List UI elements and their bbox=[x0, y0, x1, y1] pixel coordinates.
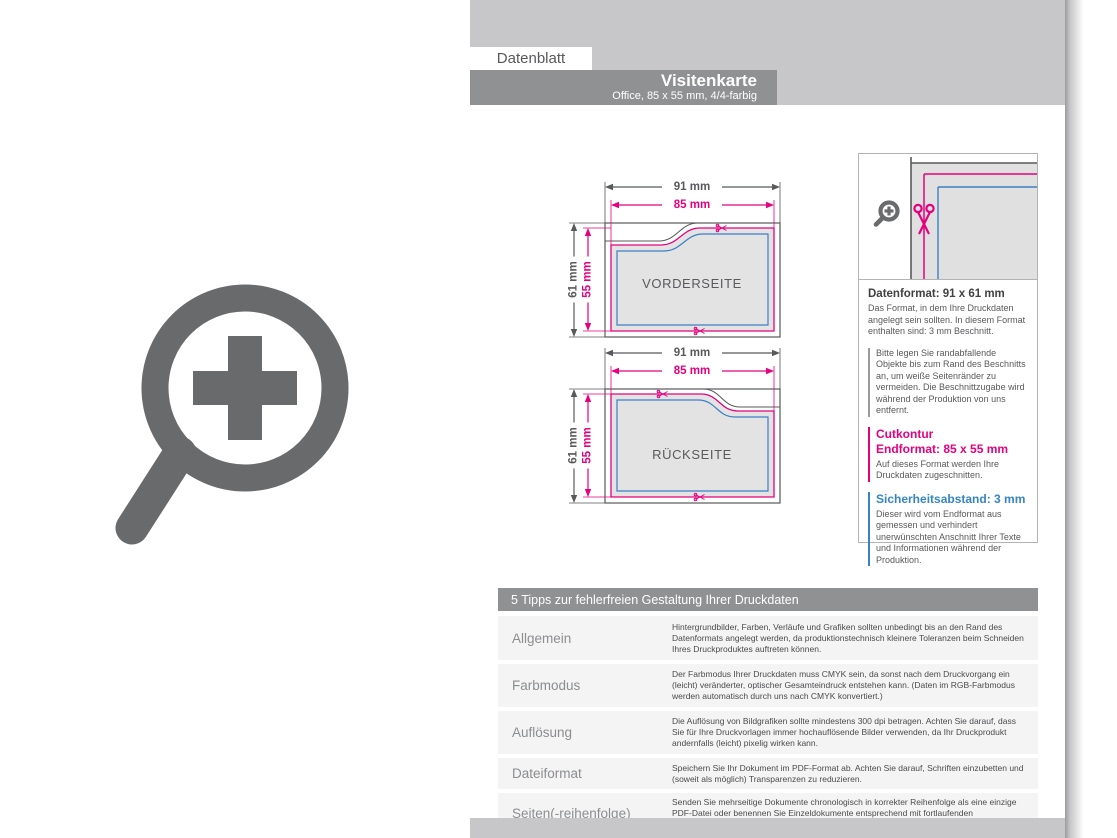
bleed-note-section: Bitte legen Sie randabfallende Objekte b… bbox=[868, 348, 1029, 417]
tip-label-dateiformat: Dateiformat bbox=[498, 766, 672, 781]
datasheet-page: Datenblatt Visitenkarte Office, 85 x 55 … bbox=[0, 0, 1117, 838]
tip-text-aufloesung: Die Auflösung von Bildgrafiken sollte mi… bbox=[672, 712, 1038, 753]
datenformat-text: Das Format, in dem Ihre Druckdaten angel… bbox=[868, 303, 1029, 338]
table-row: Allgemein Hintergrundbilder, Farben, Ver… bbox=[498, 616, 1038, 660]
tips-header: 5 Tipps zur fehlerfreien Gestaltung Ihre… bbox=[498, 588, 1038, 611]
back-side-label: RÜCKSEITE bbox=[612, 447, 772, 462]
sicherheitsabstand-title: Sicherheitsabstand: 3 mm bbox=[876, 492, 1029, 507]
table-row: Dateiformat Speichern Sie Ihr Dokument i… bbox=[498, 758, 1038, 789]
front-side-diagram: 91 mm 85 mm 61 mm 55 mm VORDERSEITE bbox=[555, 180, 800, 345]
corner-detail-image bbox=[859, 154, 1037, 280]
back-side-diagram: 91 mm 85 mm 61 mm 55 mm RÜCKSEITE bbox=[555, 346, 800, 511]
back-dim-61mm: 61 mm bbox=[568, 423, 581, 469]
back-dim-55mm: 55 mm bbox=[582, 423, 595, 469]
page-edge-shadow bbox=[1065, 0, 1087, 838]
datenformat-section: Datenformat: 91 x 61 mm Das Format, in d… bbox=[868, 287, 1029, 338]
tip-text-dateiformat: Speichern Sie Ihr Dokument im PDF-Format… bbox=[672, 759, 1038, 789]
corner-detail-drawing bbox=[859, 154, 1037, 279]
magnifier-plus-icon bbox=[102, 268, 372, 558]
endformat-text: Auf dieses Format werden Ihre Druckdaten… bbox=[876, 459, 1029, 482]
cutkontur-title: Cutkontur bbox=[876, 427, 1029, 442]
front-dim-61mm: 61 mm bbox=[568, 257, 581, 303]
bleed-note-text: Bitte legen Sie randabfallende Objekte b… bbox=[876, 348, 1029, 417]
back-dim-91mm: 91 mm bbox=[662, 347, 722, 360]
tip-text-farbmodus: Der Farbmodus Ihrer Druckdaten muss CMYK… bbox=[672, 665, 1038, 706]
datenblatt-tab-label: Datenblatt bbox=[497, 50, 565, 67]
zoom-icon bbox=[876, 203, 898, 225]
info-panel-text: Datenformat: 91 x 61 mm Das Format, in d… bbox=[859, 280, 1037, 566]
datenblatt-tab: Datenblatt bbox=[470, 47, 592, 70]
tip-label-farbmodus: Farbmodus bbox=[498, 678, 672, 693]
front-dim-55mm: 55 mm bbox=[582, 257, 595, 303]
tips-title: 5 Tipps zur fehlerfreien Gestaltung Ihre… bbox=[511, 593, 799, 607]
page-title: Visitenkarte bbox=[661, 72, 757, 90]
tip-text-allgemein: Hintergrundbilder, Farben, Verläufe und … bbox=[672, 618, 1038, 659]
sicherheitsabstand-section: Sicherheitsabstand: 3 mm Dieser wird vom… bbox=[868, 492, 1029, 567]
tip-label-allgemein: Allgemein bbox=[498, 631, 672, 646]
front-side-label: VORDERSEITE bbox=[612, 276, 772, 291]
datenformat-title: Datenformat: 91 x 61 mm bbox=[868, 287, 1029, 301]
tips-table: 5 Tipps zur fehlerfreien Gestaltung Ihre… bbox=[498, 588, 1038, 834]
cutkontur-section: Cutkontur Endformat: 85 x 55 mm Auf dies… bbox=[868, 427, 1029, 482]
info-panel: Datenformat: 91 x 61 mm Das Format, in d… bbox=[858, 153, 1038, 543]
title-bar: Visitenkarte Office, 85 x 55 mm, 4/4-far… bbox=[470, 70, 777, 105]
endformat-title: Endformat: 85 x 55 mm bbox=[876, 442, 1029, 457]
bottom-gray-band bbox=[470, 818, 1065, 838]
table-row: Auflösung Die Auflösung von Bildgrafiken… bbox=[498, 711, 1038, 754]
table-row: Farbmodus Der Farbmodus Ihrer Druckdaten… bbox=[498, 664, 1038, 707]
back-dim-85mm: 85 mm bbox=[662, 365, 722, 378]
page-subtitle: Office, 85 x 55 mm, 4/4-farbig bbox=[612, 90, 757, 103]
front-dim-85mm: 85 mm bbox=[662, 199, 722, 212]
front-dim-91mm: 91 mm bbox=[662, 181, 722, 194]
sicherheitsabstand-text: Dieser wird vom Endformat aus gemessen u… bbox=[876, 509, 1029, 567]
tip-label-aufloesung: Auflösung bbox=[498, 725, 672, 740]
